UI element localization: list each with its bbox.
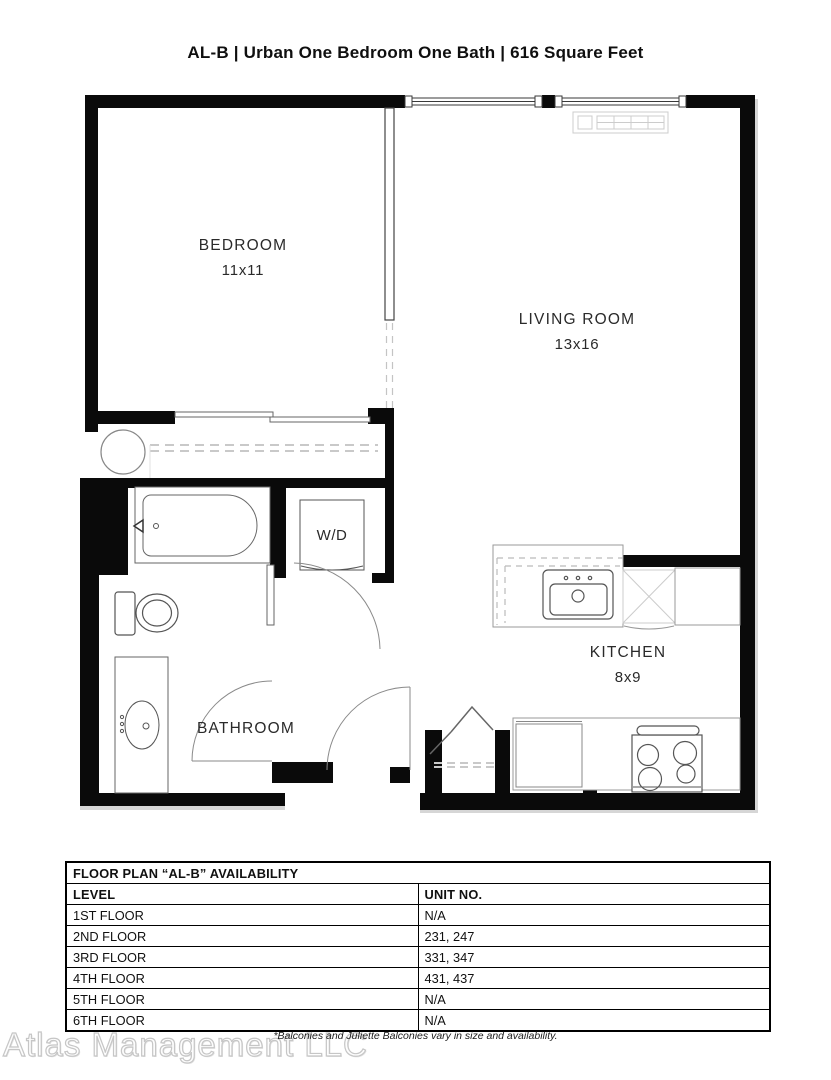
page-title: AL-B | Urban One Bedroom One Bath | 616 … — [0, 43, 831, 63]
level-cell: 4TH FLOOR — [66, 968, 418, 989]
availability-table: FLOOR PLAN “AL-B” AVAILABILITY LEVEL UNI… — [65, 861, 771, 1032]
table-row: 5TH FLOOR N/A — [66, 989, 770, 1010]
table-row: 2ND FLOOR 231, 247 — [66, 926, 770, 947]
kitchen-label: KITCHEN — [590, 644, 666, 661]
bathtub-icon — [134, 487, 270, 563]
wd-label: W/D — [317, 527, 348, 544]
vanity-sink-icon — [115, 657, 168, 793]
kitchen-right-counter — [675, 568, 740, 625]
level-cell: 5TH FLOOR — [66, 989, 418, 1010]
table-row: 3RD FLOOR 331, 347 — [66, 947, 770, 968]
unit-cell: N/A — [418, 1010, 770, 1032]
bedroom-partition — [385, 108, 394, 408]
table-title: FLOOR PLAN “AL-B” AVAILABILITY — [66, 862, 770, 884]
unit-cell: N/A — [418, 989, 770, 1010]
kitchen-dims: 8x9 — [615, 669, 642, 686]
level-cell: 1ST FLOOR — [66, 905, 418, 926]
unit-cell: 431, 437 — [418, 968, 770, 989]
unit-cell: N/A — [418, 905, 770, 926]
wall-shadows — [80, 99, 758, 813]
bedroom-dims: 11x11 — [222, 262, 265, 279]
door-swings — [192, 563, 410, 770]
level-cell: 2ND FLOOR — [66, 926, 418, 947]
kitchen-lower-counter — [513, 718, 740, 792]
entry-door-arc — [327, 687, 410, 770]
level-cell: 3RD FLOOR — [66, 947, 418, 968]
table-row: 4TH FLOOR 431, 437 — [66, 968, 770, 989]
living-room-label: LIVING ROOM — [519, 311, 636, 328]
level-header: LEVEL — [66, 884, 418, 905]
coat-closet-rod — [434, 763, 494, 767]
table-title-row: FLOOR PLAN “AL-B” AVAILABILITY — [66, 862, 770, 884]
closet-sliding-doors-icon — [175, 412, 370, 422]
walls — [80, 95, 755, 810]
balcony-disclaimer: *Balconies and Juliette Balconies vary i… — [0, 1030, 831, 1042]
living-room-dims: 13x16 — [555, 336, 600, 353]
bedroom-label: BEDROOM — [199, 237, 288, 254]
stove-icon — [632, 726, 702, 792]
unit-cell: 231, 247 — [418, 926, 770, 947]
heater-vent-icon — [573, 112, 668, 133]
closet-rod — [101, 430, 378, 478]
kitchen-counter — [493, 545, 623, 627]
bathroom-label: BATHROOM — [197, 720, 295, 737]
kitchen-sink-icon — [543, 570, 613, 619]
table-row: 1ST FLOOR N/A — [66, 905, 770, 926]
unit-no-header: UNIT NO. — [418, 884, 770, 905]
dishwasher-icon — [623, 570, 675, 629]
floor-plan: BEDROOM 11x11 LIVING ROOM 13x16 KITCHEN … — [80, 95, 760, 813]
table-header-row: LEVEL UNIT NO. — [66, 884, 770, 905]
toilet-icon — [115, 592, 178, 635]
unit-cell: 331, 347 — [418, 947, 770, 968]
